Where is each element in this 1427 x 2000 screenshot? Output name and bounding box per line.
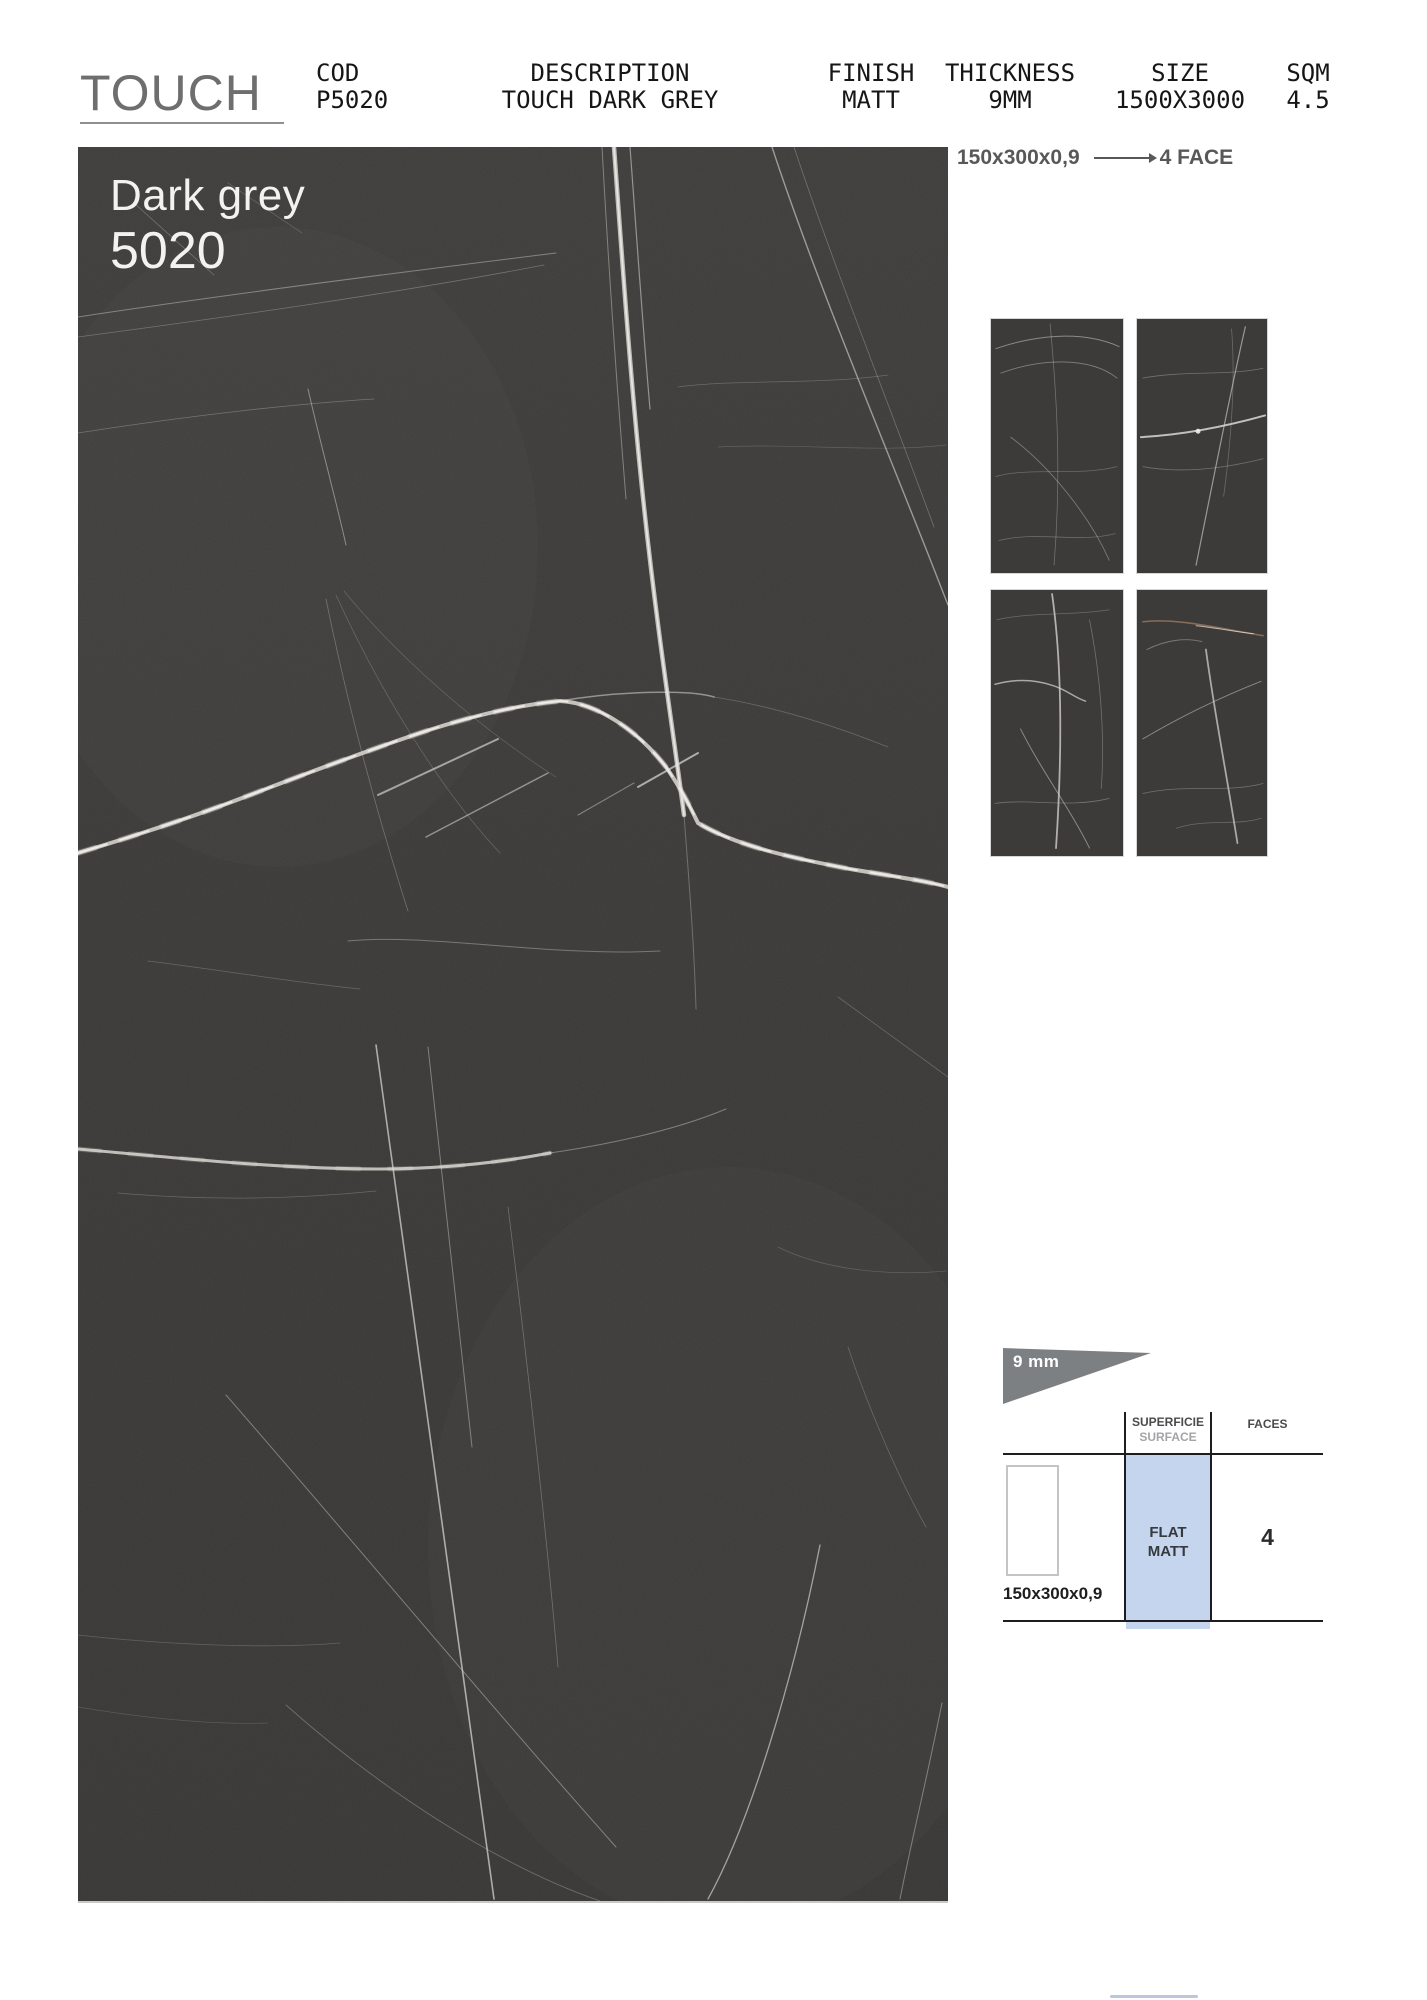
- catalog-page: TOUCH COD P5020 DESCRIPTION TOUCH DARK G…: [0, 0, 1427, 2000]
- spec-table-vline: [1210, 1412, 1212, 1622]
- slab-color-name: Dark grey: [110, 172, 305, 220]
- surface-value: FLAT MATT: [1126, 1523, 1210, 1561]
- format-note: 150x300x0,9 4 FACE: [957, 146, 1233, 170]
- header-column-description: DESCRIPTION TOUCH DARK GREY: [450, 60, 770, 114]
- face-thumbnail-veins: [1137, 319, 1267, 573]
- face-thumbnail-veins: [1137, 590, 1267, 856]
- header-value: TOUCH DARK GREY: [450, 87, 770, 114]
- faces-column-header: FACES: [1212, 1418, 1323, 1431]
- face-thumbnail-3: [990, 589, 1124, 857]
- face-thumbnail-veins: [991, 319, 1123, 573]
- thickness-label: 9 mm: [1013, 1352, 1059, 1372]
- header-column-size: SIZE 1500X3000: [1090, 60, 1270, 114]
- format-faces-label: 4 FACE: [1160, 146, 1234, 170]
- header-label: SQM: [1248, 60, 1368, 87]
- slab-color-code: 5020: [110, 223, 226, 280]
- header-value: 1500X3000: [1090, 87, 1270, 114]
- brand-underline: [80, 122, 284, 124]
- face-thumbnail-2: [1136, 318, 1268, 574]
- spec-table-hline: [1003, 1453, 1323, 1455]
- header-column-thickness: THICKNESS 9MM: [920, 60, 1100, 114]
- tile-size-label: 150x300x0,9: [1003, 1584, 1102, 1604]
- slab-image: Dark grey 5020: [78, 147, 948, 1903]
- header-label: SIZE: [1090, 60, 1270, 87]
- header-column-sqm: SQM 4.5: [1248, 60, 1368, 114]
- header-column-cod: COD P5020: [316, 60, 388, 114]
- face-thumbnail-veins: [991, 590, 1123, 856]
- footer-accent-line: [1110, 1995, 1198, 1998]
- face-thumbnail-4: [1136, 589, 1268, 857]
- arrow-right-icon: [1094, 157, 1150, 159]
- header-value: 4.5: [1248, 87, 1368, 114]
- surface-header: SURFACE: [1126, 1431, 1210, 1444]
- surface-value-line2: MATT: [1126, 1542, 1210, 1561]
- header-label: DESCRIPTION: [450, 60, 770, 87]
- header-value: 9MM: [920, 87, 1100, 114]
- header-label: THICKNESS: [920, 60, 1100, 87]
- face-thumbnail-1: [990, 318, 1124, 574]
- format-size-label: 150x300x0,9: [957, 146, 1080, 170]
- faces-value: 4: [1212, 1524, 1323, 1551]
- superficie-header: SUPERFICIE: [1132, 1415, 1204, 1429]
- tile-outline-shape: [1006, 1465, 1059, 1576]
- brand-logo: TOUCH: [80, 68, 262, 118]
- surface-value-line1: FLAT: [1126, 1523, 1210, 1542]
- header-label: COD: [316, 60, 388, 87]
- spec-table-hline: [1003, 1620, 1323, 1622]
- header-value: P5020: [316, 87, 388, 114]
- surface-column-header: SUPERFICIE SURFACE: [1126, 1416, 1210, 1444]
- marble-veins-svg: [78, 147, 948, 1901]
